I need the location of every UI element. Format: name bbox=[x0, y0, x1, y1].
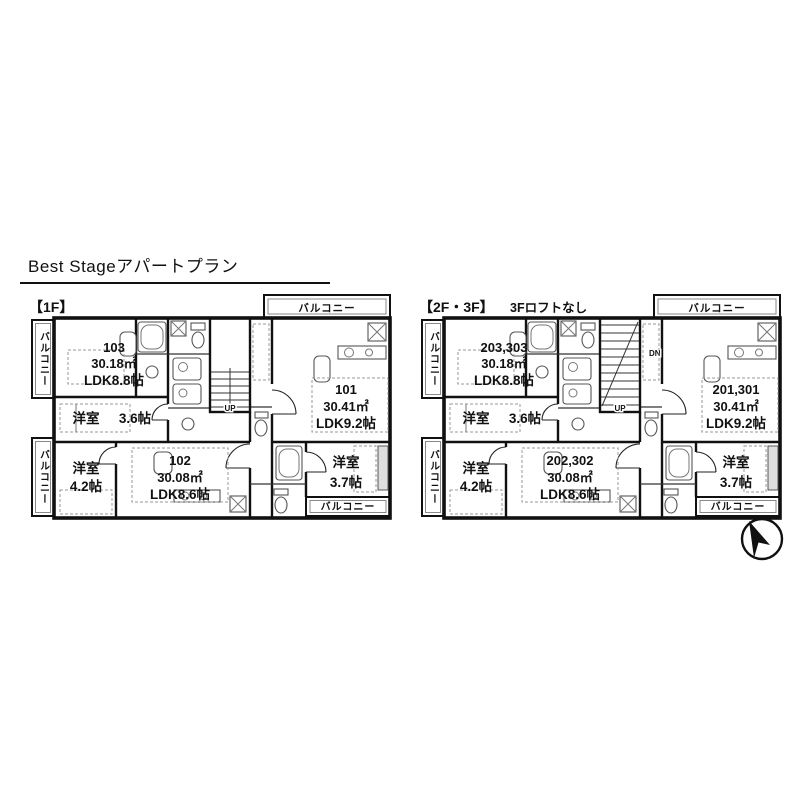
washbasin-icon bbox=[182, 418, 194, 430]
washer-icon bbox=[171, 321, 186, 336]
north-arrow-icon bbox=[735, 512, 789, 566]
stairs-up-label: UP bbox=[224, 404, 236, 413]
unit-201-301-labels: 201,301 30.41㎡ LDK9.2帖 bbox=[706, 382, 767, 431]
balcony-label: バルコニー bbox=[38, 331, 50, 386]
room-size: 3.7帖 bbox=[720, 474, 753, 490]
plan-1f-header: 【1F】 bbox=[29, 299, 73, 315]
closet bbox=[378, 446, 388, 490]
floor-plan-1f: 【1F】 バルコニー バルコニー バルコニー バルコニー bbox=[28, 292, 400, 540]
bathtub-icon bbox=[138, 322, 166, 352]
room-name: 洋室 bbox=[723, 454, 751, 470]
unit-202-302-labels: 202,302 30.08㎡ LDK8.6帖 bbox=[540, 453, 601, 502]
bathtub-icon bbox=[276, 446, 302, 480]
room-name: 洋室 bbox=[73, 460, 100, 476]
toilet-icon bbox=[255, 412, 268, 436]
stairs-up-label: UP bbox=[614, 404, 626, 413]
bathtub-icon bbox=[528, 322, 556, 352]
unit-ldk: LDK8.8帖 bbox=[84, 372, 145, 388]
washbasin-icon bbox=[146, 366, 158, 378]
room-size: 4.2帖 bbox=[70, 478, 103, 494]
unit-101-labels: 101 30.41㎡ LDK9.2帖 bbox=[316, 382, 377, 431]
balcony-bottom-right: バルコニー bbox=[306, 497, 390, 516]
washer-icon bbox=[758, 323, 776, 341]
unit-area: 30.18㎡ bbox=[91, 356, 137, 371]
balcony-left-lower: バルコニー bbox=[32, 438, 54, 516]
kitchen-icon bbox=[563, 358, 591, 404]
balcony-left-lower: バルコニー bbox=[422, 438, 444, 516]
unit-ldk: LDK8.6帖 bbox=[540, 486, 601, 502]
closet bbox=[253, 324, 269, 380]
toilet-icon bbox=[274, 489, 288, 513]
bathtub-icon bbox=[666, 446, 692, 480]
unit-area: 30.41㎡ bbox=[323, 399, 369, 414]
balcony-left-upper: バルコニー bbox=[32, 320, 54, 398]
washbasin-icon bbox=[536, 366, 548, 378]
washer-icon bbox=[561, 321, 576, 336]
toilet-icon bbox=[664, 489, 678, 513]
plan-2f3f-subheader: 3Fロフトなし bbox=[510, 301, 587, 315]
balcony-label: バルコニー bbox=[428, 331, 440, 386]
kitchen-icon bbox=[338, 346, 386, 359]
stairs-icon: DN UP bbox=[600, 318, 661, 413]
toilet-icon bbox=[581, 323, 595, 348]
unit-ldk: LDK8.8帖 bbox=[474, 372, 535, 388]
page-title-block: Best Stageアパートプラン bbox=[20, 252, 330, 284]
unit-number: 202,302 bbox=[547, 453, 594, 468]
toilet-icon bbox=[191, 323, 205, 348]
room-name: 洋室 bbox=[73, 410, 100, 426]
balcony-label: バルコニー bbox=[38, 449, 50, 504]
toilet-icon bbox=[645, 412, 658, 436]
room-name: 洋室 bbox=[463, 410, 490, 426]
unit-203-303-labels: 203,303 30.18㎡ LDK8.8帖 bbox=[474, 340, 535, 388]
unit-ldk: LDK9.2帖 bbox=[316, 415, 377, 431]
unit-number: 201,301 bbox=[713, 382, 760, 397]
unit-area: 30.08㎡ bbox=[547, 470, 593, 485]
room-size: 4.2帖 bbox=[460, 478, 493, 494]
room-size: 3.6帖 bbox=[509, 410, 542, 426]
balcony-label: バルコニー bbox=[298, 303, 355, 315]
unit-number: 101 bbox=[335, 382, 357, 397]
washer-icon bbox=[230, 496, 246, 512]
balcony-top-right: バルコニー bbox=[654, 295, 780, 318]
unit-area: 30.08㎡ bbox=[157, 470, 203, 485]
kitchen-icon bbox=[173, 358, 201, 404]
room-name: 洋室 bbox=[463, 460, 490, 476]
floor-plan-2f3f: 【2F・3F】 3Fロフトなし バルコニー バルコニー バルコニー バルコニー bbox=[418, 292, 790, 540]
room-size: 3.7帖 bbox=[330, 474, 363, 490]
page-title: Best Stageアパートプラン bbox=[28, 257, 238, 276]
room-name: 洋室 bbox=[333, 454, 360, 470]
washer-icon bbox=[368, 323, 386, 341]
balcony-label: バルコニー bbox=[428, 449, 440, 504]
unit-ldk: LDK9.2帖 bbox=[706, 415, 767, 431]
unit-number: 103 bbox=[103, 340, 125, 355]
closet bbox=[768, 446, 778, 490]
balcony-label: バルコニー bbox=[321, 501, 376, 513]
balcony-top-right: バルコニー bbox=[264, 295, 390, 318]
stairs-icon: UP bbox=[210, 318, 250, 413]
room-size: 3.6帖 bbox=[119, 410, 152, 426]
plan-2f3f-header: 【2F・3F】 bbox=[419, 299, 494, 315]
unit-ldk: LDK8.6帖 bbox=[150, 486, 211, 502]
unit-number: 102 bbox=[169, 453, 191, 468]
unit-area: 30.18㎡ bbox=[481, 356, 527, 371]
balcony-left-upper: バルコニー bbox=[422, 320, 444, 398]
kitchen-icon bbox=[728, 346, 776, 359]
washer-icon bbox=[620, 496, 636, 512]
balcony-label: バルコニー bbox=[688, 303, 745, 315]
unit-number: 203,303 bbox=[481, 340, 528, 355]
unit-area: 30.41㎡ bbox=[713, 399, 759, 414]
washbasin-icon bbox=[572, 418, 584, 430]
